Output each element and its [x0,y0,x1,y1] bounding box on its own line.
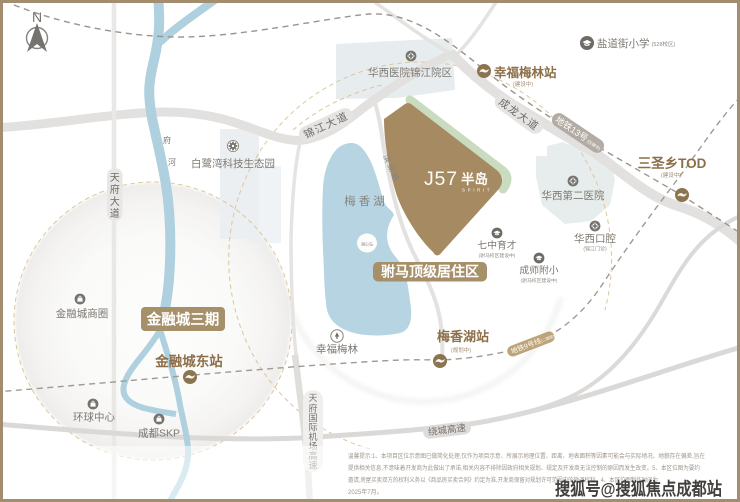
svg-text:天: 天 [110,173,120,184]
svg-text:SPIRIT: SPIRIT [462,188,492,193]
svg-text:机: 机 [308,431,317,442]
svg-text:(规划中): (规划中) [451,346,471,354]
svg-text:梅香湖: 梅香湖 [344,194,388,208]
svg-text:湖心岛: 湖心岛 [361,241,373,247]
svg-text:成都SKP: 成都SKP [138,428,180,440]
svg-text:金融城东站: 金融城东站 [154,353,223,369]
svg-text:2025年7月。: 2025年7月。 [348,488,383,496]
svg-text:府: 府 [163,135,171,145]
svg-text:道: 道 [110,207,120,220]
svg-text:府: 府 [110,183,120,196]
svg-text:金融城商圈: 金融城商圈 [56,307,109,320]
svg-text:华西医院锦江院区: 华西医院锦江院区 [368,66,452,79]
svg-text:(建设中): (建设中) [661,171,681,179]
svg-text:华西口腔: 华西口腔 [574,232,616,245]
svg-text:搜狐号@搜狐焦点成都站: 搜狐号@搜狐焦点成都站 [555,479,722,499]
svg-text:际: 际 [308,423,317,433]
svg-text:(建设中): (建设中) [513,80,533,88]
svg-text:提供相关信息,不意味着开发商为此做出了承诺,相关内容不排除因: 提供相关信息,不意味着开发商为此做出了承诺,相关内容不排除因政府相关规划、规定及… [348,464,700,472]
svg-text:幸福梅林: 幸福梅林 [316,343,358,356]
svg-text:白鹭湾科技生态园: 白鹭湾科技生态园 [191,157,275,170]
svg-text:N: N [32,9,42,25]
svg-text:(528校区): (528校区) [652,40,676,48]
svg-text:J57: J57 [424,168,458,190]
svg-text:半岛: 半岛 [461,171,488,187]
svg-text:(驸马校区建设中): (驸马校区建设中) [479,252,516,259]
svg-text:温馨提示:1、本项目区位示意图已做简化处理,仅作为项目示意、: 温馨提示:1、本项目区位示意图已做简化处理,仅作为项目示意、所展示地理位置、距离… [348,452,705,460]
svg-text:府: 府 [308,403,317,414]
svg-text:国: 国 [308,413,317,423]
svg-text:幸福梅林站: 幸福梅林站 [494,65,557,80]
svg-text:三圣乡TOD: 三圣乡TOD [638,156,707,171]
svg-text:梅香湖站: 梅香湖站 [437,329,489,344]
svg-text:天: 天 [308,393,317,403]
svg-text:盐道街小学: 盐道街小学 [597,37,650,50]
svg-text:成师附小: 成师附小 [519,264,558,277]
svg-text:七中育才: 七中育才 [477,239,516,252]
svg-text:华西第二医院: 华西第二医院 [542,189,605,202]
svg-text:河: 河 [168,157,176,167]
svg-text:环球中心: 环球中心 [73,411,115,424]
svg-text:驸马顶级居住区: 驸马顶级居住区 [381,264,479,280]
svg-text:金融城三期: 金融城三期 [146,311,220,329]
svg-text:(锦江门诊): (锦江门诊) [583,246,607,253]
svg-text:(驸马校区建设中): (驸马校区建设中) [521,277,558,284]
svg-text:大: 大 [110,195,120,208]
